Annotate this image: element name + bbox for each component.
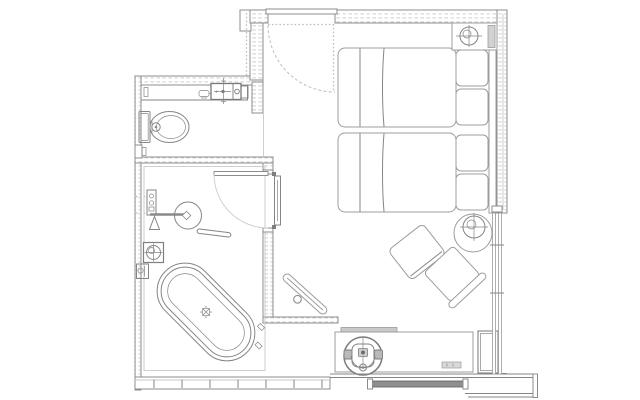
tub-control-1	[257, 323, 264, 330]
panel-bracket-bottom	[272, 225, 276, 229]
wall-wc-right-stub	[252, 82, 263, 113]
floor-tub-filler	[144, 243, 164, 263]
floor-plan-drawing	[0, 0, 640, 400]
luggage-bench	[276, 272, 329, 322]
entry-door-head	[266, 9, 337, 14]
window-wall-south	[135, 377, 330, 389]
wall-top-stub	[250, 10, 268, 23]
bed1-pillow-2	[456, 89, 488, 125]
tub-control-2	[255, 342, 262, 349]
sill-corner-post	[533, 374, 538, 398]
bed1-pillow-1	[456, 50, 488, 86]
desk-chair	[344, 337, 383, 375]
nightstand-shade	[488, 26, 495, 48]
bath-shelf	[197, 229, 231, 238]
glazing-jamb-right	[463, 379, 468, 389]
panel-bracket-top	[272, 172, 276, 176]
drain-symbol	[200, 306, 212, 318]
glazing-jamb-left	[368, 379, 373, 389]
bed2-pillow-2	[456, 174, 488, 210]
toilet	[139, 112, 189, 143]
wall-entry-column	[240, 10, 251, 31]
twin-bed-2	[338, 133, 488, 212]
entry-door-swing-arc	[268, 25, 335, 92]
wc-wall-stub	[135, 145, 142, 158]
wall-wc-bottom	[135, 157, 273, 163]
headboard	[489, 46, 496, 213]
wall-bath-right-lower	[263, 228, 273, 322]
glazing-panel	[372, 381, 464, 387]
bed1-mattress	[338, 48, 456, 127]
twin-bed-1	[338, 48, 488, 127]
nightstand	[452, 23, 497, 50]
bathroom-door-swing-arc	[214, 174, 268, 228]
desk-chair-armrest-right	[375, 350, 383, 359]
wall-right-upper	[497, 10, 507, 213]
wc-room	[135, 78, 248, 158]
window-sill-southeast	[330, 374, 538, 398]
floor-plan-canvas	[0, 0, 640, 400]
shower-set	[136, 190, 202, 230]
bathroom	[136, 167, 281, 373]
bed2-mattress	[338, 133, 456, 212]
counter-accessory	[144, 88, 148, 97]
sliding-panel	[272, 172, 281, 229]
wall-top-right	[335, 10, 499, 23]
bed2-pillow-1	[456, 135, 488, 171]
wall-bath-southeast	[263, 317, 338, 323]
bathroom-door	[214, 170, 273, 232]
shower-drain-triangle	[150, 217, 160, 230]
bathtub	[146, 252, 267, 373]
window-east-head	[492, 206, 502, 212]
bath-platform-edge	[144, 167, 265, 371]
wall-left	[135, 76, 141, 390]
tp-holder	[142, 148, 146, 156]
round-side-table	[454, 213, 492, 252]
door-jamb-bottom	[263, 228, 273, 232]
wall-top-left	[135, 76, 263, 85]
desk-accessory	[442, 362, 461, 368]
bathroom-door-leaf	[214, 172, 268, 176]
